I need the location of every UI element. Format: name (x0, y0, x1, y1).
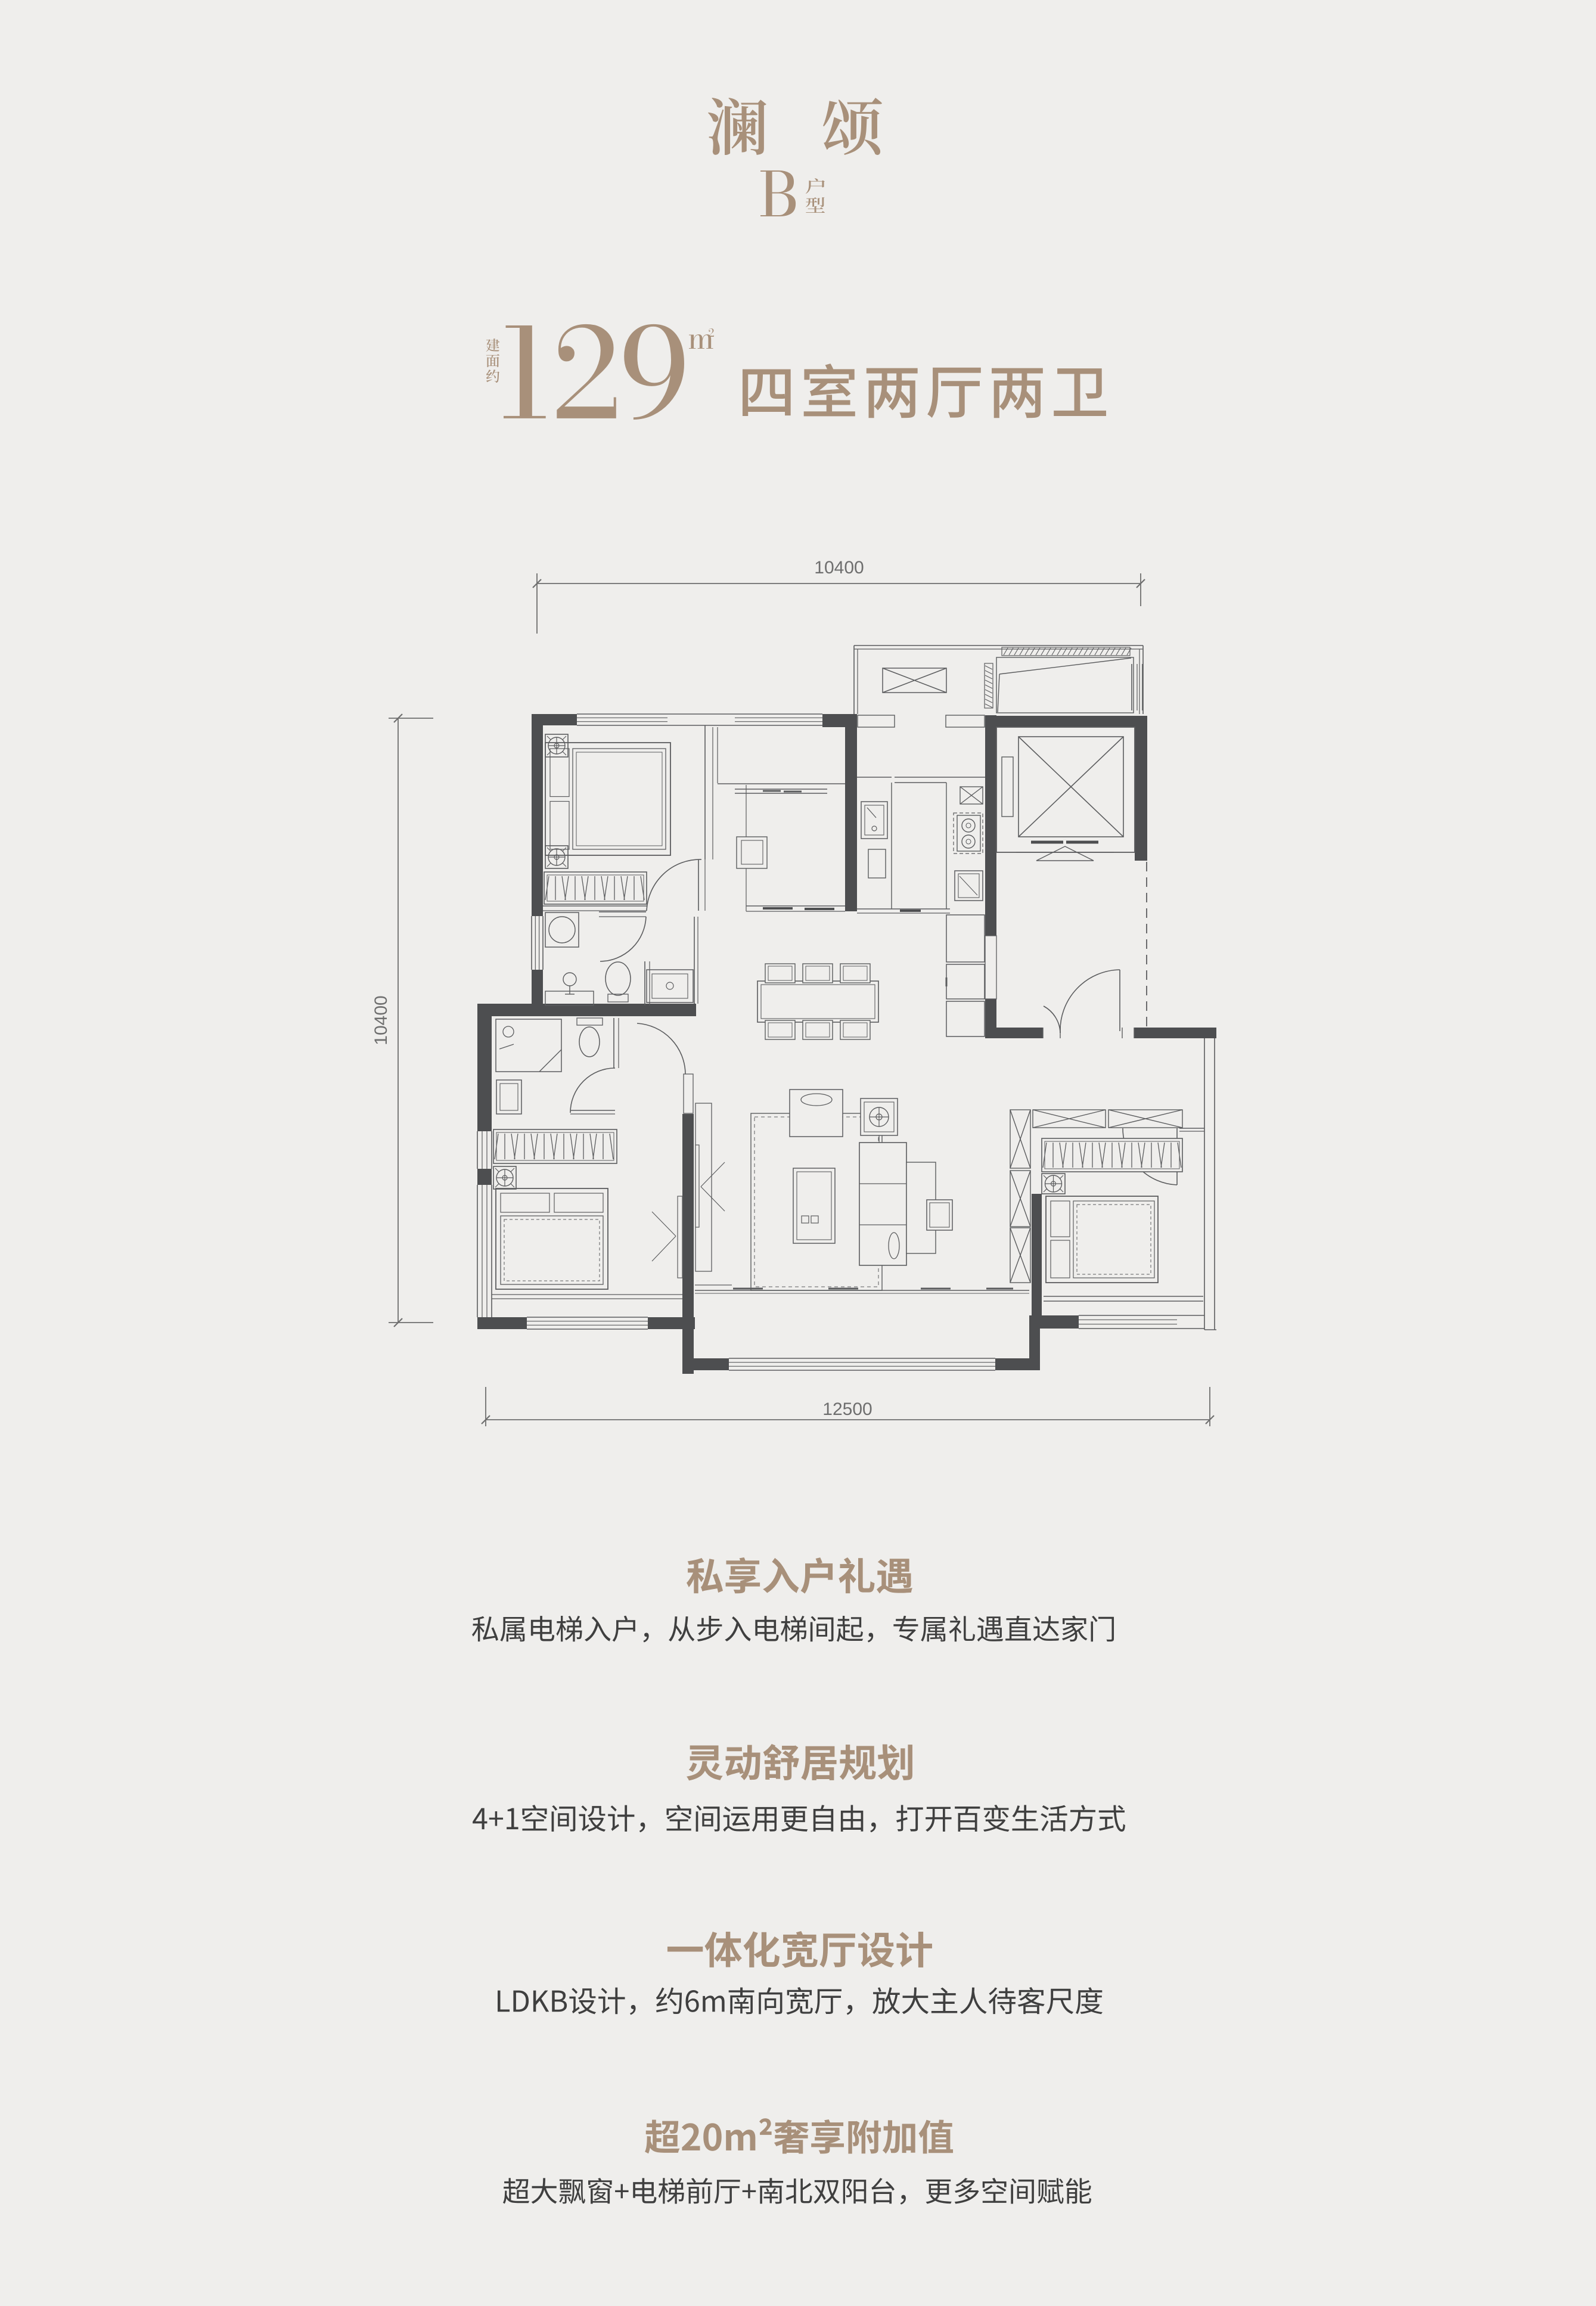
svg-text:10400: 10400 (814, 558, 864, 578)
svg-text:12500: 12500 (822, 1399, 872, 1419)
svg-text:10400: 10400 (371, 995, 391, 1045)
